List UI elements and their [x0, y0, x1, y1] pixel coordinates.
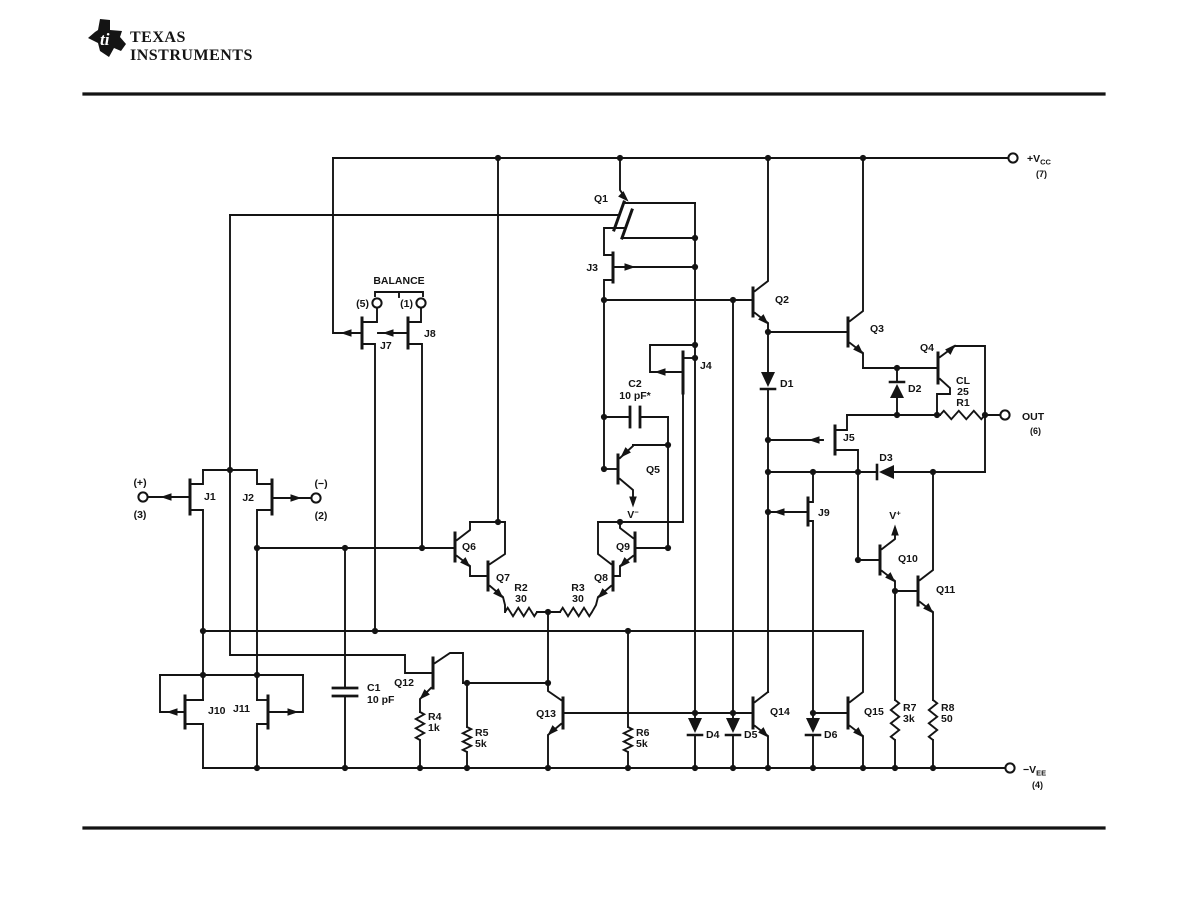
label-base: +V — [1027, 153, 1040, 165]
wire — [190, 470, 203, 484]
label-r8_value: 50 — [941, 713, 953, 725]
junction-dot — [545, 680, 551, 686]
junction-dot — [934, 412, 940, 418]
label-d3: D3 — [879, 452, 893, 464]
junction-dot — [665, 442, 671, 448]
junction-dot — [200, 628, 206, 634]
label-j2: J2 — [242, 492, 254, 504]
label-bal1: (1) — [400, 298, 413, 310]
arrowhead — [167, 708, 178, 716]
terminal-input-inverting — [311, 493, 320, 502]
junction-dot — [625, 765, 631, 771]
junction-dot — [892, 588, 898, 594]
junction-dot — [765, 437, 771, 443]
junction-dot — [855, 557, 861, 563]
label-q12: Q12 — [394, 677, 414, 689]
label-r2_value: 30 — [515, 593, 527, 605]
label-r6_value: 5k — [636, 738, 648, 750]
junction-dot — [254, 672, 260, 678]
junction-dot — [765, 155, 771, 161]
junction-dot — [765, 329, 771, 335]
label-r4_value: 1k — [428, 722, 440, 734]
junction-dot — [930, 469, 936, 475]
junction-dot — [765, 765, 771, 771]
label-r1_ref: R1 — [956, 397, 970, 409]
arrowhead — [618, 191, 629, 202]
wire — [457, 556, 488, 576]
label-vcc: +VCC — [1027, 153, 1052, 167]
resistor-r5 — [463, 727, 471, 752]
wire — [435, 653, 463, 683]
diode-d3 — [879, 465, 894, 479]
terminal-out — [1000, 410, 1009, 419]
junction-dot — [227, 467, 233, 473]
wire — [457, 522, 470, 540]
diode-d4 — [688, 718, 702, 733]
label-r7_value: 3k — [903, 713, 915, 725]
label-j4: J4 — [700, 360, 712, 372]
wire — [408, 344, 422, 548]
resistor-r2 — [505, 608, 537, 616]
junction-dot — [495, 155, 501, 161]
label-q1: Q1 — [594, 193, 608, 205]
junction-dot — [692, 235, 698, 241]
label-q9: Q9 — [616, 541, 630, 553]
wire — [920, 472, 933, 580]
diode-d6 — [806, 718, 820, 733]
label-q8: Q8 — [594, 572, 608, 584]
junction-dot — [254, 765, 260, 771]
terminal-vee — [1005, 763, 1014, 772]
wire — [755, 158, 768, 291]
arrowhead — [625, 263, 636, 271]
junction-dot — [692, 264, 698, 270]
wire — [185, 724, 203, 768]
wire — [604, 228, 624, 255]
transistor-bar — [614, 202, 624, 230]
wire — [362, 344, 375, 631]
junction-dot — [692, 765, 698, 771]
label-superscript: − — [634, 507, 639, 516]
label-d5: D5 — [744, 729, 758, 741]
wire — [190, 510, 203, 700]
label-q11: Q11 — [936, 584, 955, 596]
label-vcc_pin: (7) — [1036, 169, 1047, 179]
label-q10: Q10 — [898, 553, 918, 565]
label-q14: Q14 — [770, 706, 790, 718]
label-q4: Q4 — [920, 342, 934, 354]
arrowhead — [774, 508, 785, 516]
junction-dot — [617, 155, 623, 161]
junction-dot — [464, 765, 470, 771]
label-d1: D1 — [780, 378, 794, 390]
label-base: V — [627, 509, 634, 521]
label-q15: Q15 — [864, 706, 884, 718]
label-subscript: EE — [1036, 769, 1046, 778]
junction-dot — [601, 414, 607, 420]
arrowhead — [547, 725, 558, 736]
label-in_neg_pin: (2) — [315, 510, 328, 522]
label-out_pin: (6) — [1030, 426, 1041, 436]
junction-dot — [765, 469, 771, 475]
junction-dot — [464, 680, 470, 686]
junction-dot — [372, 628, 378, 634]
label-balance: BALANCE — [373, 275, 424, 287]
wire — [850, 631, 863, 702]
label-r5_value: 5k — [475, 738, 487, 750]
junction-dot — [692, 710, 698, 716]
junction-dot — [200, 672, 206, 678]
label-q13: Q13 — [536, 708, 556, 720]
label-j10: J10 — [208, 705, 226, 717]
label-superscript: + — [896, 508, 901, 517]
wire — [257, 510, 272, 700]
wire — [160, 675, 185, 712]
ti-logo: ti — [88, 19, 126, 57]
label-d2: D2 — [908, 383, 922, 395]
resistor-r8 — [929, 700, 937, 740]
wire — [850, 158, 863, 321]
junction-dot — [730, 765, 736, 771]
label-base: −V — [1023, 764, 1036, 776]
arrowhead — [809, 436, 820, 444]
junction-dot — [855, 469, 861, 475]
resistor-r7 — [891, 700, 899, 740]
junction-dot — [254, 545, 260, 551]
label-out: OUT — [1022, 411, 1045, 423]
diode-d5 — [726, 718, 740, 733]
label-c1_value: 10 pF — [367, 694, 395, 706]
diode-d1 — [761, 372, 775, 387]
wire — [755, 692, 768, 702]
resistor-r3 — [560, 608, 592, 616]
junction-dot — [892, 765, 898, 771]
arrowhead — [341, 329, 352, 337]
datasheet-page: Q1Q2Q3Q4Q5Q6Q7Q8Q9Q10Q11Q12Q13Q14Q15J1J2… — [0, 0, 1188, 918]
junction-dot — [417, 765, 423, 771]
wire — [808, 521, 813, 713]
label-j11: J11 — [233, 703, 250, 715]
junction-dot — [810, 710, 816, 716]
label-j7: J7 — [380, 340, 392, 352]
label-j8: J8 — [424, 328, 436, 340]
diode-d2 — [890, 384, 904, 398]
wire — [920, 602, 933, 700]
wire — [835, 415, 847, 430]
arrowhead — [891, 525, 899, 536]
wire — [257, 470, 272, 484]
junction-dot — [765, 509, 771, 515]
wire — [490, 522, 505, 564]
terminal-balance-5 — [372, 298, 381, 307]
wire — [598, 522, 611, 564]
junction-dot — [930, 765, 936, 771]
wire — [268, 675, 303, 712]
label-in_pos_pin: (3) — [134, 509, 147, 521]
junction-dot — [894, 412, 900, 418]
junction-dot — [692, 342, 698, 348]
label-d4: D4 — [706, 729, 720, 741]
junction-dot — [545, 609, 551, 615]
junction-dot — [810, 469, 816, 475]
arrowhead — [945, 344, 956, 355]
label-q2: Q2 — [775, 294, 789, 306]
junction-dot — [617, 519, 623, 525]
junction-dot — [601, 466, 607, 472]
junction-dot — [625, 628, 631, 634]
label-base: V — [889, 510, 896, 522]
junction-dot — [730, 297, 736, 303]
wire — [548, 683, 561, 700]
junction-dot — [810, 765, 816, 771]
junction-dot — [860, 155, 866, 161]
label-v-plus: V+ — [889, 508, 901, 522]
junction-dot — [545, 765, 551, 771]
brand-name-line1: TEXAS — [130, 29, 186, 46]
arrowhead — [288, 708, 299, 716]
label-j1: J1 — [204, 491, 216, 503]
junction-dot — [692, 355, 698, 361]
junction-dot — [601, 297, 607, 303]
resistor-r4 — [416, 712, 424, 740]
wire — [408, 308, 421, 322]
label-vee_pin: (4) — [1032, 780, 1043, 790]
label-v-minus: V− — [627, 507, 639, 521]
logo-monogram: ti — [100, 30, 110, 49]
junction-dot — [665, 545, 671, 551]
label-j5: J5 — [843, 432, 855, 444]
resistor-r1 — [940, 411, 985, 419]
label-vee: −VEE — [1023, 764, 1046, 778]
wire — [592, 586, 611, 612]
arrowhead — [161, 493, 172, 501]
arrowhead — [383, 329, 394, 337]
junction-dot — [860, 765, 866, 771]
label-c1_ref: C1 — [367, 682, 381, 694]
terminal-input-noninverting — [138, 492, 147, 501]
label-in_pos: (+) — [133, 477, 146, 489]
label-q7: Q7 — [496, 572, 510, 584]
label-q3: Q3 — [870, 323, 884, 335]
wire — [604, 280, 613, 469]
junction-dot — [342, 765, 348, 771]
label-subscript: CC — [1040, 158, 1051, 167]
arrowhead — [291, 494, 302, 502]
label-j3: J3 — [586, 262, 598, 274]
transistor-bar — [622, 210, 632, 238]
label-j9: J9 — [818, 507, 830, 519]
wire — [613, 556, 633, 576]
label-d6: D6 — [824, 729, 838, 741]
label-bal5: (5) — [356, 298, 369, 310]
arrowhead — [655, 368, 666, 376]
junction-dot — [342, 545, 348, 551]
label-q6: Q6 — [462, 541, 476, 553]
junction-dot — [730, 710, 736, 716]
wire — [362, 308, 377, 322]
wire — [835, 450, 858, 560]
wire — [257, 724, 268, 768]
label-r3_value: 30 — [572, 593, 584, 605]
terminal-vcc — [1008, 153, 1017, 162]
terminal-balance-1 — [416, 298, 425, 307]
junction-dot — [495, 519, 501, 525]
brand-name-line2: INSTRUMENTS — [130, 47, 253, 64]
resistor-r6 — [624, 727, 632, 752]
label-c2_value: 10 pF* — [619, 390, 651, 402]
arrowhead — [629, 497, 637, 508]
schematic-canvas: Q1Q2Q3Q4Q5Q6Q7Q8Q9Q10Q11Q12Q13Q14Q15J1J2… — [0, 0, 1188, 918]
wire — [230, 470, 433, 673]
junction-dot — [894, 365, 900, 371]
junction-dot — [419, 545, 425, 551]
label-c2_ref: C2 — [628, 378, 642, 390]
label-in_neg: (−) — [314, 478, 327, 490]
label-q5: Q5 — [646, 464, 660, 476]
